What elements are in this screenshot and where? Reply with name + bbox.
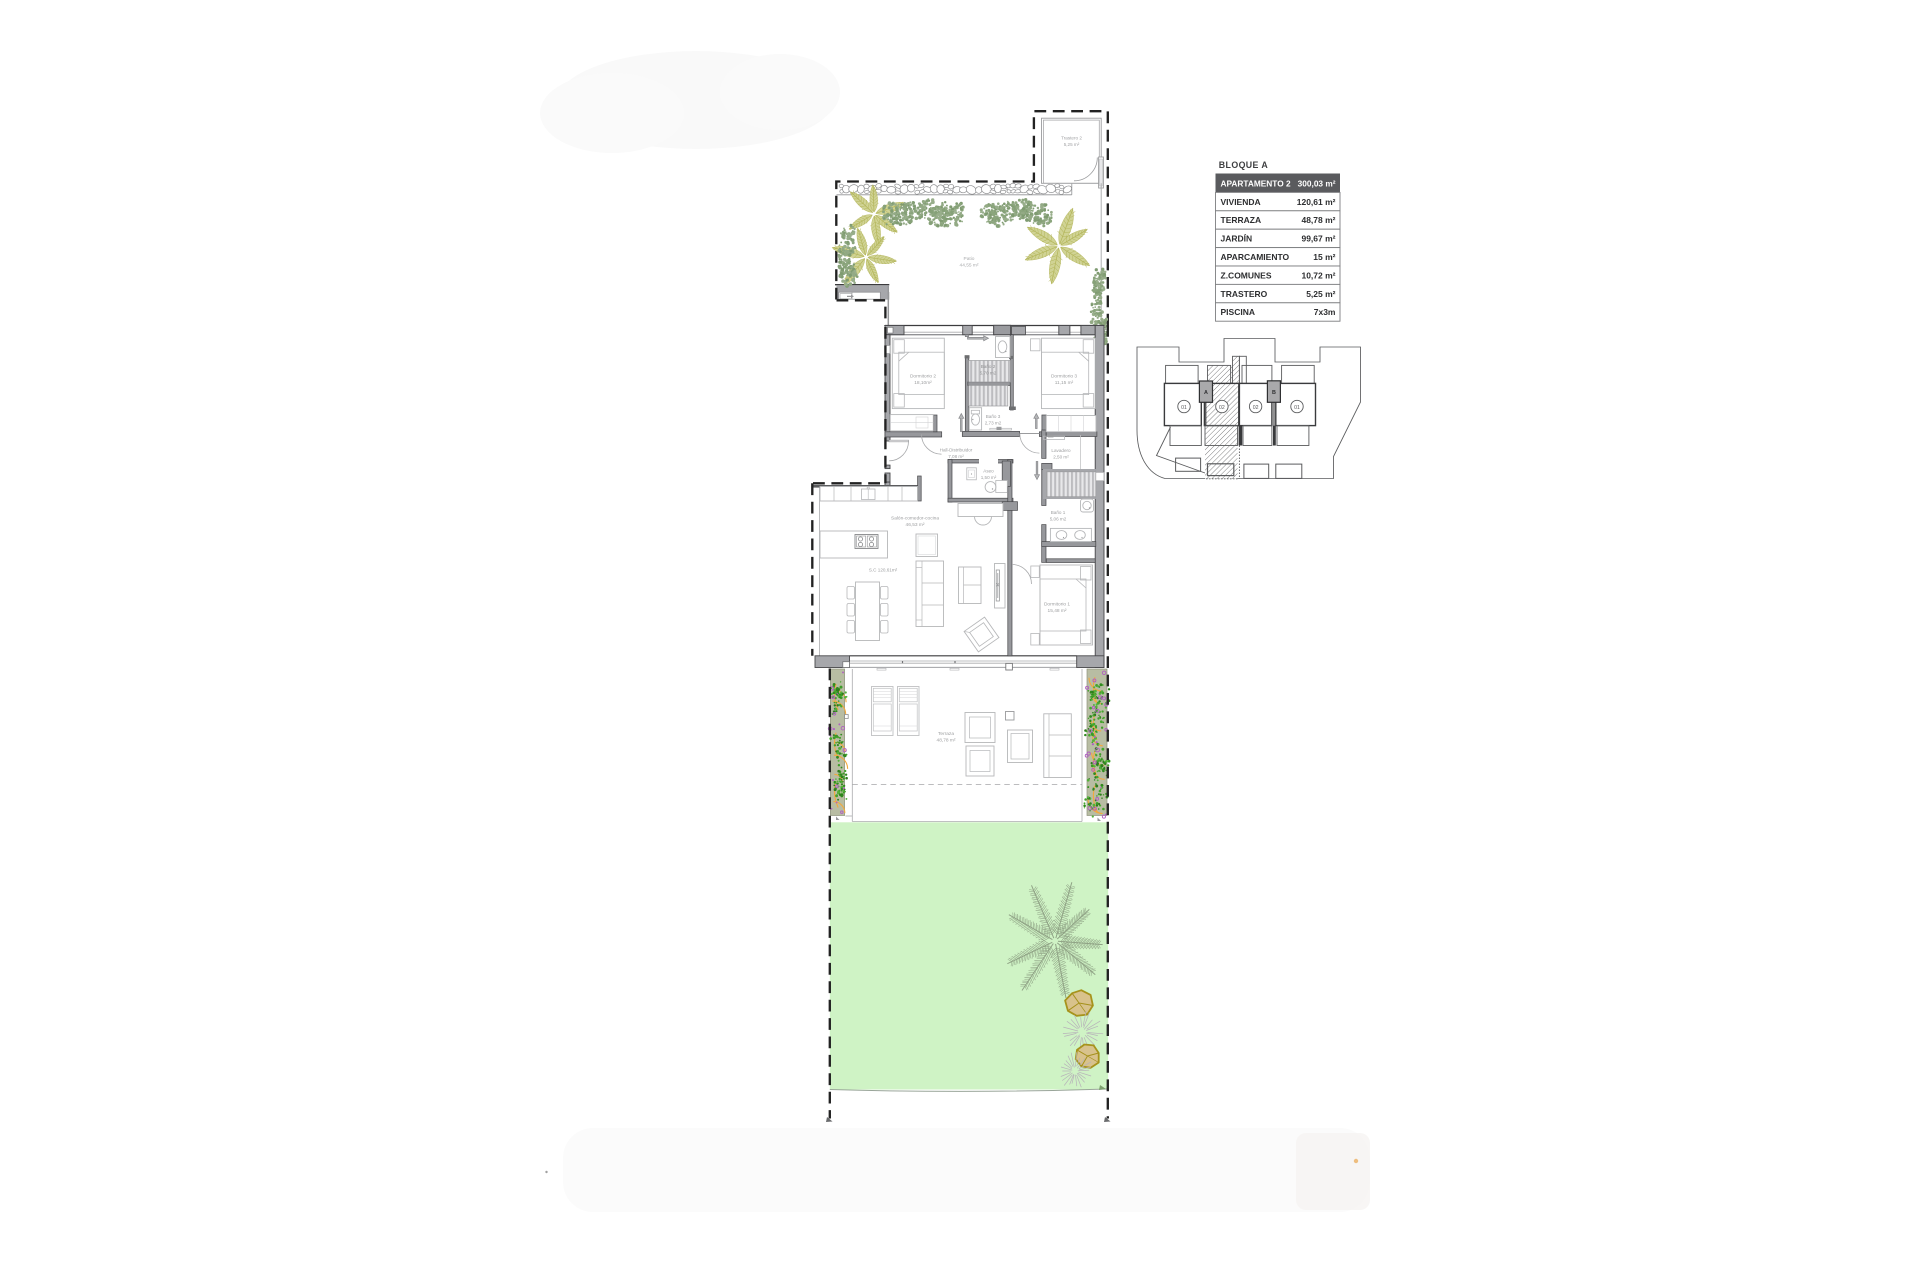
- svg-text:Baño 3: Baño 3: [986, 414, 1001, 419]
- svg-text:Dormitorio 2: Dormitorio 2: [910, 374, 936, 380]
- svg-text:48,78 m²: 48,78 m²: [1301, 215, 1335, 225]
- svg-text:5,06 m2: 5,06 m2: [1050, 517, 1067, 522]
- svg-text:APARCAMIENTO: APARCAMIENTO: [1221, 252, 1290, 262]
- svg-text:TRASTERO: TRASTERO: [1221, 289, 1268, 299]
- svg-text:PISCINA: PISCINA: [1221, 307, 1255, 317]
- svg-text:5,70 m2: 5,70 m2: [980, 371, 997, 376]
- svg-text:5,25 m²: 5,25 m²: [1064, 142, 1080, 147]
- svg-text:99,67 m²: 99,67 m²: [1301, 234, 1335, 244]
- svg-text:5,25 m²: 5,25 m²: [1306, 289, 1335, 299]
- svg-text:11,15 m²: 11,15 m²: [1055, 380, 1074, 386]
- svg-text:46,53 m²: 46,53 m²: [906, 522, 925, 528]
- svg-text:44,55 m²: 44,55 m²: [960, 263, 979, 269]
- svg-text:Salón-comedor-cocina: Salón-comedor-cocina: [891, 516, 939, 522]
- svg-text:120,61 m²: 120,61 m²: [1297, 197, 1336, 207]
- svg-text:JARDÍN: JARDÍN: [1221, 234, 1253, 244]
- svg-text:Baño 2: Baño 2: [981, 364, 996, 369]
- svg-text:2,50 m²: 2,50 m²: [1053, 455, 1069, 460]
- svg-text:A: A: [1204, 390, 1208, 396]
- svg-text:TERRAZA: TERRAZA: [1221, 215, 1262, 225]
- svg-text:Dormitorio 3: Dormitorio 3: [1051, 374, 1077, 380]
- svg-text:S.C 120,61m²: S.C 120,61m²: [869, 568, 898, 573]
- svg-text:Baño 1: Baño 1: [1051, 510, 1066, 515]
- svg-text:15,48 m²: 15,48 m²: [1048, 608, 1067, 614]
- svg-text:7,08 m²: 7,08 m²: [948, 454, 964, 459]
- svg-text:Z.COMUNES: Z.COMUNES: [1221, 270, 1272, 280]
- svg-text:Hall-Distribuidor: Hall-Distribuidor: [940, 448, 973, 453]
- svg-text:APARTAMENTO 2: APARTAMENTO 2: [1221, 179, 1291, 189]
- svg-text:300,03 m²: 300,03 m²: [1298, 179, 1336, 189]
- svg-text:Lavadero: Lavadero: [1051, 448, 1071, 453]
- svg-text:2,73 m2: 2,73 m2: [985, 421, 1002, 426]
- svg-text:Patio: Patio: [964, 256, 975, 262]
- svg-text:02: 02: [1219, 405, 1225, 411]
- svg-text:B: B: [1272, 390, 1276, 396]
- svg-text:7x3m: 7x3m: [1314, 307, 1336, 317]
- svg-text:18,10m²: 18,10m²: [914, 380, 932, 386]
- svg-text:Trastero 2: Trastero 2: [1061, 136, 1082, 141]
- svg-text:Aseo: Aseo: [983, 468, 994, 473]
- svg-text:15 m²: 15 m²: [1313, 252, 1335, 262]
- svg-text:01: 01: [1181, 405, 1187, 411]
- svg-text:10,72 m²: 10,72 m²: [1301, 270, 1335, 280]
- svg-text:VIVIENDA: VIVIENDA: [1221, 197, 1261, 207]
- svg-text:1,50 m²: 1,50 m²: [981, 475, 997, 480]
- svg-text:02: 02: [1253, 405, 1259, 411]
- svg-text:BLOQUE A: BLOQUE A: [1219, 160, 1269, 170]
- svg-text:Dormitorio 1: Dormitorio 1: [1044, 602, 1070, 608]
- svg-text:Terraza: Terraza: [938, 731, 954, 737]
- svg-text:01: 01: [1294, 405, 1300, 411]
- svg-text:48,78 m²: 48,78 m²: [937, 738, 956, 744]
